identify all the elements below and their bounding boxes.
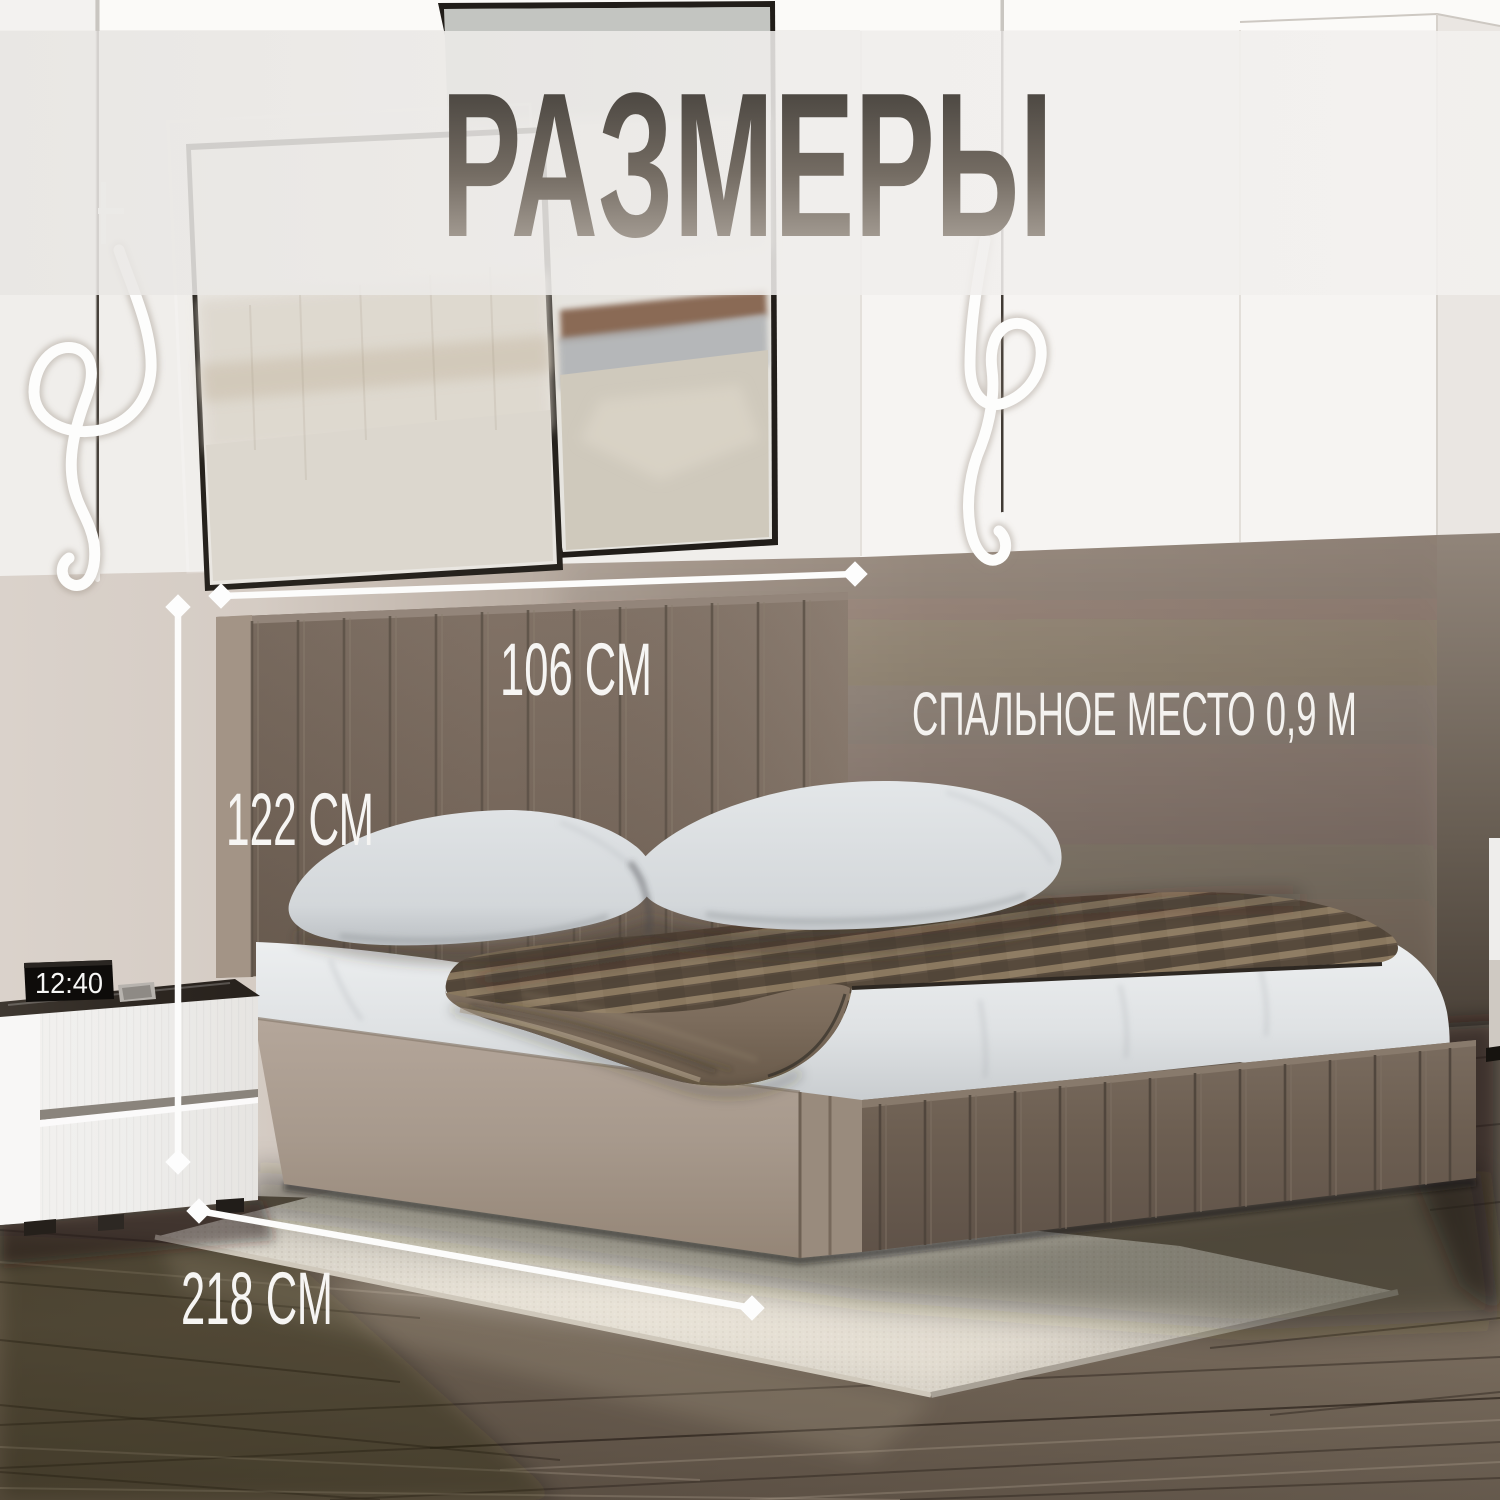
svg-text:122 СМ: 122 СМ (226, 778, 374, 861)
svg-text:218 СМ: 218 СМ (181, 1257, 333, 1340)
svg-text:СПАЛЬНОЕ МЕСТО 0,9 М: СПАЛЬНОЕ МЕСТО 0,9 М (912, 680, 1357, 748)
svg-text:106 СМ: 106 СМ (500, 628, 652, 711)
svg-text:РАЗМЕРЫ: РАЗМЕРЫ (441, 50, 1053, 280)
